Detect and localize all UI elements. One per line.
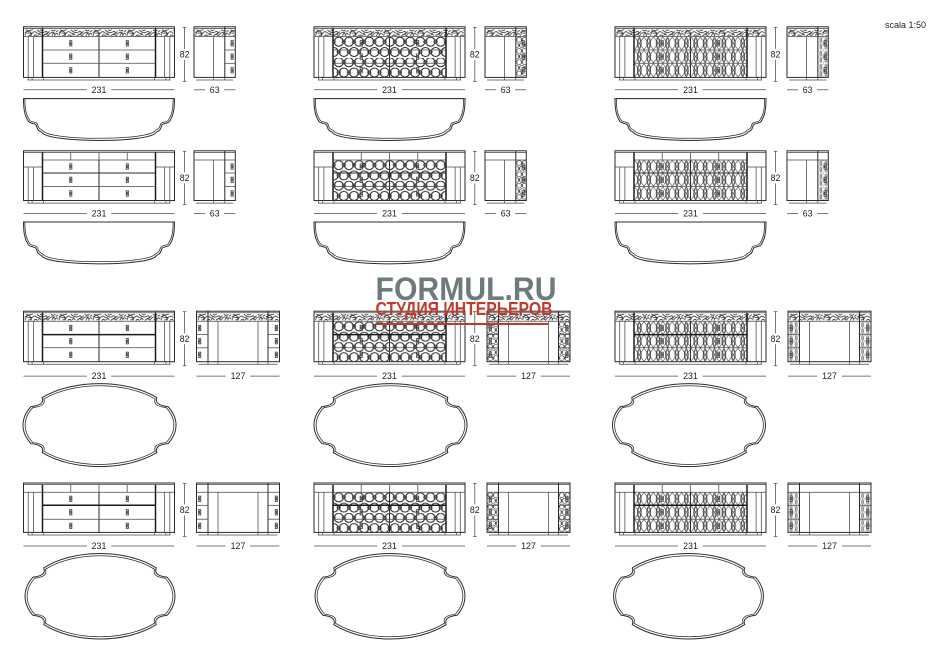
svg-text:82: 82: [470, 505, 480, 515]
svg-text:127: 127: [231, 541, 246, 551]
svg-text:63: 63: [803, 209, 813, 219]
svg-text:63: 63: [210, 209, 220, 219]
svg-text:127: 127: [521, 541, 536, 551]
svg-text:127: 127: [822, 371, 837, 381]
svg-text:63: 63: [501, 85, 511, 95]
svg-text:63: 63: [210, 85, 220, 95]
svg-text:82: 82: [771, 50, 781, 60]
svg-text:231: 231: [92, 85, 107, 95]
svg-text:231: 231: [92, 371, 107, 381]
svg-text:231: 231: [92, 209, 107, 219]
svg-text:231: 231: [92, 541, 107, 551]
svg-text:82: 82: [180, 334, 190, 344]
svg-text:231: 231: [683, 371, 698, 381]
svg-text:127: 127: [822, 541, 837, 551]
svg-text:231: 231: [382, 209, 397, 219]
svg-text:82: 82: [771, 505, 781, 515]
svg-text:63: 63: [803, 85, 813, 95]
svg-text:82: 82: [470, 50, 480, 60]
svg-text:231: 231: [683, 85, 698, 95]
svg-text:82: 82: [180, 173, 190, 183]
svg-text:82: 82: [771, 334, 781, 344]
svg-text:231: 231: [382, 541, 397, 551]
svg-text:127: 127: [521, 371, 536, 381]
svg-text:231: 231: [683, 209, 698, 219]
svg-text:82: 82: [180, 50, 190, 60]
svg-text:82: 82: [470, 173, 480, 183]
svg-text:231: 231: [382, 371, 397, 381]
svg-text:63: 63: [501, 209, 511, 219]
svg-text:127: 127: [231, 371, 246, 381]
svg-text:231: 231: [683, 541, 698, 551]
svg-text:82: 82: [180, 505, 190, 515]
svg-text:82: 82: [470, 334, 480, 344]
svg-text:231: 231: [382, 85, 397, 95]
svg-text:82: 82: [771, 173, 781, 183]
